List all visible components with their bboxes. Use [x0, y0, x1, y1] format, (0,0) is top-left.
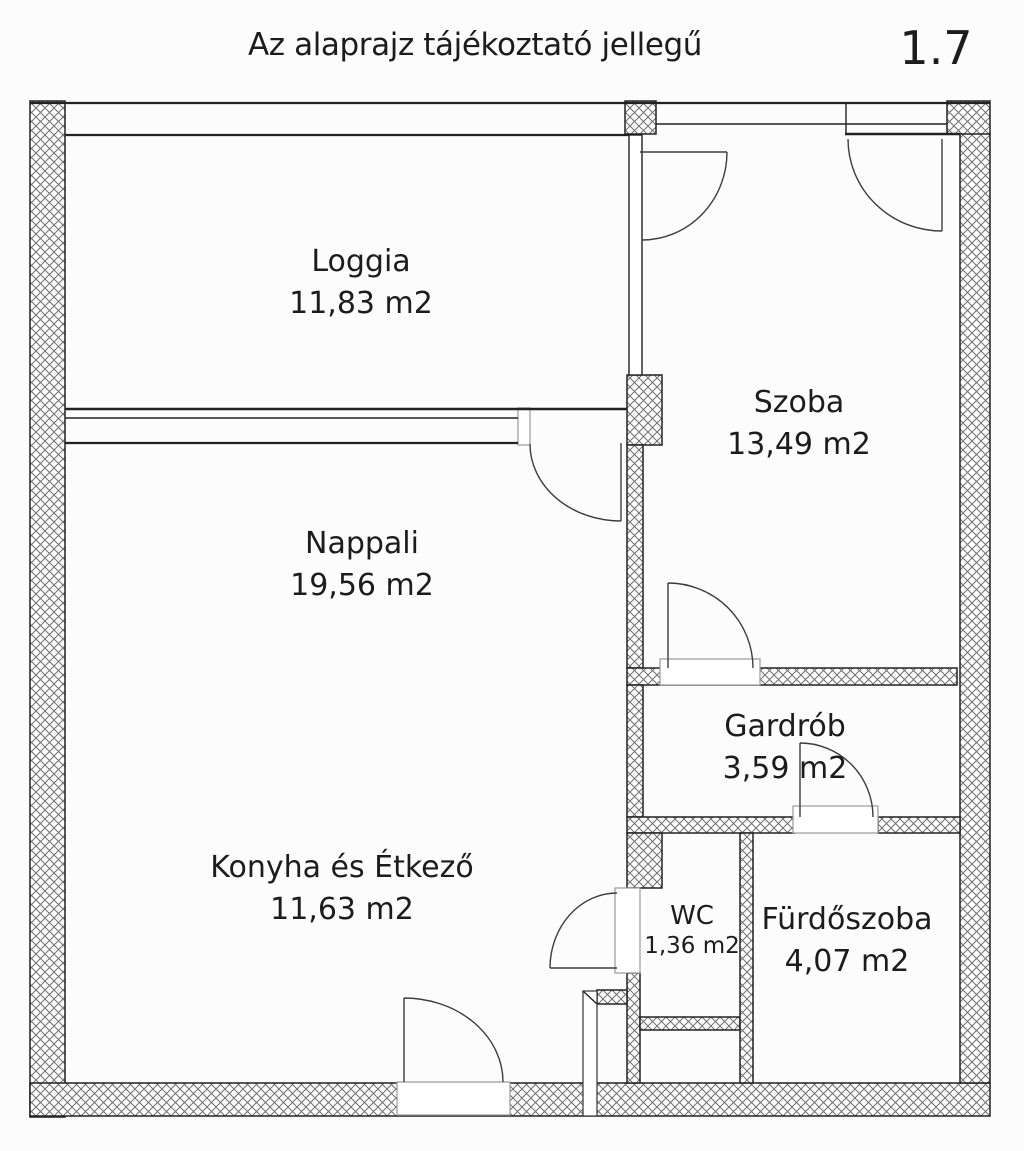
window-frame-divider	[518, 408, 530, 445]
threshold-wc	[615, 888, 640, 973]
wall-wc-left-upper	[627, 833, 662, 888]
threshold-entrance	[397, 1082, 510, 1115]
door-szoba-right	[848, 139, 942, 231]
wall-wc-bath-divider	[740, 833, 753, 1083]
room-area: 1,36 m2	[644, 931, 740, 961]
room-area: 11,63 m2	[210, 889, 473, 931]
room-name: Konyha és Étkező	[210, 847, 473, 889]
entry-duct	[583, 991, 597, 1116]
threshold-szoba-gardrob	[660, 659, 760, 685]
wall-pillar-top-middle	[625, 101, 656, 134]
threshold-gardrob-bathroom	[793, 806, 878, 833]
room-label-furdoszoba: Fürdőszoba 4,07 m2	[762, 899, 933, 983]
wall-gardrob-bottom-right	[878, 817, 960, 833]
wall-entry-stub	[597, 990, 627, 1004]
room-label-gardrob: Gardrób 3,59 m2	[723, 706, 848, 790]
wall-gardrob-left	[627, 685, 643, 817]
room-area: 4,07 m2	[762, 941, 933, 983]
wall-wc-bottom	[640, 1017, 740, 1030]
room-label-wc: WC 1,36 m2	[644, 901, 740, 961]
room-name: Nappali	[290, 523, 434, 565]
wall-gardrob-bottom-left	[627, 817, 795, 833]
wall-pillar-loggia-szoba	[627, 375, 662, 445]
door-entrance	[404, 998, 503, 1082]
room-label-nappali: Nappali 19,56 m2	[290, 523, 434, 607]
room-label-szoba: Szoba 13,49 m2	[727, 382, 871, 466]
floor-plan-page: Az alaprajz tájékoztató jellegű 1.7	[0, 0, 1024, 1151]
room-area: 13,49 m2	[727, 424, 871, 466]
room-name: Szoba	[727, 382, 871, 424]
wall-right-outer	[960, 133, 990, 1083]
door-gardrob	[668, 583, 753, 668]
door-wc	[550, 893, 617, 968]
wall-wc-left-lower	[627, 973, 640, 1083]
room-area: 11,83 m2	[289, 283, 433, 325]
room-name: Loggia	[289, 241, 433, 283]
door-szoba-left	[640, 152, 727, 240]
wall-szoba-left	[627, 445, 643, 668]
room-area: 19,56 m2	[290, 565, 434, 607]
door-balcony	[530, 443, 621, 521]
room-name: Fürdőszoba	[762, 899, 933, 941]
wall-loggia-szoba-thin	[629, 135, 642, 375]
room-label-konyha: Konyha és Étkező 11,63 m2	[210, 847, 473, 931]
room-name: WC	[644, 901, 740, 931]
room-label-loggia: Loggia 11,83 m2	[289, 241, 433, 325]
room-name: Gardrób	[723, 706, 848, 748]
room-area: 3,59 m2	[723, 748, 848, 790]
wall-left-outer	[30, 101, 65, 1117]
wall-pillar-top-right	[947, 101, 990, 134]
